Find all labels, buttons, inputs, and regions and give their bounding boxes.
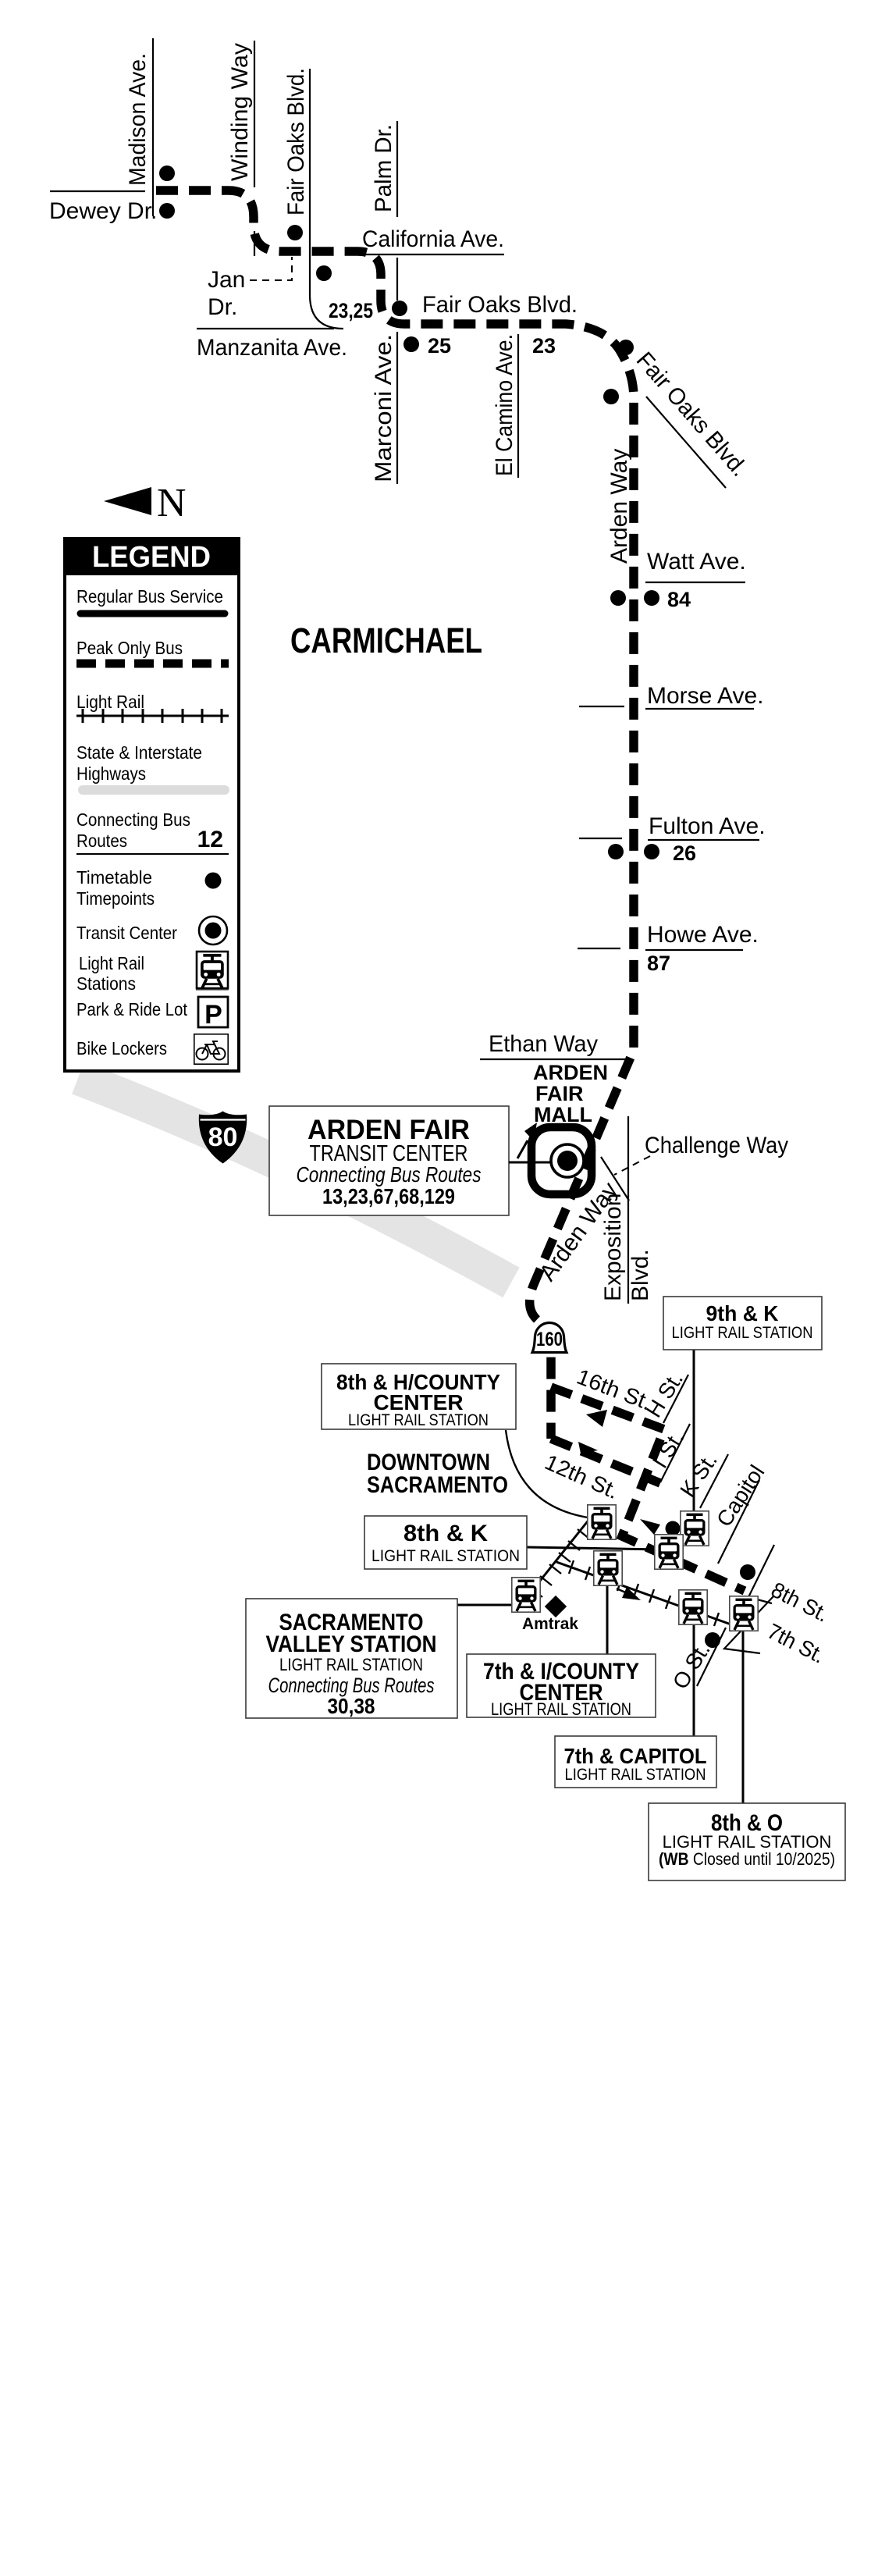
svg-text:80: 80 [208, 1123, 238, 1152]
svg-text:LIGHT RAIL STATION: LIGHT RAIL STATION [565, 1766, 706, 1784]
svg-text:Connecting Bus Routes: Connecting Bus Routes [297, 1162, 482, 1187]
svg-text:Routes: Routes [76, 831, 127, 851]
svg-text:30,38: 30,38 [328, 1694, 375, 1718]
svg-text:Palm Dr.: Palm Dr. [371, 124, 396, 212]
svg-text:26: 26 [673, 841, 696, 865]
svg-text:El Camino Ave.: El Camino Ave. [492, 334, 517, 476]
svg-text:State & Interstate: State & Interstate [76, 742, 202, 763]
svg-text:CARMICHAEL: CARMICHAEL [290, 621, 482, 660]
svg-text:N: N [157, 481, 187, 525]
svg-text:Peak Only Bus: Peak Only Bus [76, 638, 183, 658]
svg-text:ARDEN: ARDEN [533, 1061, 608, 1084]
svg-text:LIGHT RAIL STATION: LIGHT RAIL STATION [348, 1411, 489, 1429]
svg-text:(WB Closed until 10/2025): (WB Closed until 10/2025) [659, 1849, 835, 1869]
svg-text:Fair Oaks Blvd.: Fair Oaks Blvd. [283, 68, 309, 215]
svg-text:Howe Ave.: Howe Ave. [647, 922, 759, 948]
svg-text:FAIR: FAIR [535, 1082, 584, 1105]
svg-text:87: 87 [647, 952, 670, 975]
svg-text:Morse Ave.: Morse Ave. [647, 683, 764, 709]
svg-text:Connecting Bus: Connecting Bus [76, 809, 190, 830]
svg-text:Arden Way: Arden Way [606, 449, 632, 564]
svg-text:23: 23 [532, 334, 556, 358]
svg-text:Light Rail: Light Rail [76, 692, 144, 712]
svg-text:Transit Center: Transit Center [76, 923, 177, 943]
svg-text:25: 25 [428, 334, 451, 358]
svg-text:Regular Bus Service: Regular Bus Service [76, 586, 223, 607]
svg-text:Light Rail: Light Rail [79, 953, 144, 973]
svg-text:LIGHT RAIL STATION: LIGHT RAIL STATION [371, 1547, 520, 1565]
svg-text:Marconi Ave.: Marconi Ave. [371, 334, 396, 482]
svg-text:160: 160 [536, 1329, 563, 1350]
svg-text:Timepoints: Timepoints [76, 888, 155, 909]
svg-text:Highways: Highways [76, 763, 146, 784]
svg-text:Stations: Stations [76, 973, 136, 994]
svg-text:Timetable: Timetable [76, 867, 152, 888]
svg-text:Bike Lockers: Bike Lockers [76, 1038, 167, 1059]
svg-text:Fair Oaks Blvd.: Fair Oaks Blvd. [422, 292, 578, 318]
svg-text:Amtrak: Amtrak [522, 1615, 578, 1633]
svg-text:Ethan Way: Ethan Way [489, 1031, 598, 1057]
svg-text:12: 12 [197, 827, 223, 852]
svg-text:P: P [204, 1000, 222, 1030]
svg-text:VALLEY STATION: VALLEY STATION [266, 1631, 437, 1657]
svg-text:Dewey Dr.: Dewey Dr. [49, 198, 157, 224]
svg-text:23,25: 23,25 [329, 299, 373, 322]
svg-text:LIGHT RAIL STATION: LIGHT RAIL STATION [279, 1655, 423, 1674]
svg-text:Fulton Ave.: Fulton Ave. [649, 813, 766, 839]
svg-text:Manzanita Ave.: Manzanita Ave. [197, 335, 347, 361]
svg-text:Challenge Way: Challenge Way [645, 1133, 788, 1158]
svg-text:LEGEND: LEGEND [92, 541, 211, 574]
svg-text:9th & K: 9th & K [706, 1301, 779, 1325]
svg-text:Madison Ave.: Madison Ave. [125, 53, 151, 186]
svg-text:LIGHT RAIL STATION: LIGHT RAIL STATION [672, 1324, 813, 1342]
svg-text:Watt Ave.: Watt Ave. [647, 549, 746, 575]
svg-text:8th & K: 8th & K [403, 1521, 488, 1546]
svg-text:SACRAMENTO: SACRAMENTO [367, 1472, 508, 1498]
svg-text:LIGHT RAIL STATION: LIGHT RAIL STATION [491, 1699, 631, 1719]
svg-text:Blvd.: Blvd. [627, 1249, 653, 1301]
svg-text:Dr.: Dr. [208, 294, 237, 320]
svg-text:California Ave.: California Ave. [362, 226, 504, 252]
svg-text:Park & Ride Lot: Park & Ride Lot [76, 999, 188, 1019]
svg-text:13,23,67,68,129: 13,23,67,68,129 [322, 1184, 455, 1208]
svg-text:Jan: Jan [208, 267, 245, 293]
svg-text:7th & CAPITOL: 7th & CAPITOL [564, 1744, 707, 1768]
svg-text:84: 84 [667, 588, 691, 611]
svg-text:Winding Way: Winding Way [227, 43, 253, 181]
svg-text:Exposition: Exposition [600, 1194, 626, 1301]
svg-text:MALL: MALL [534, 1103, 592, 1126]
